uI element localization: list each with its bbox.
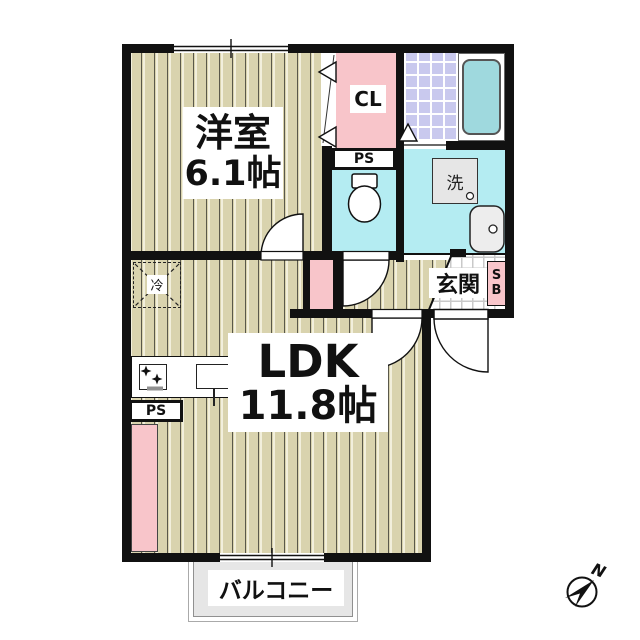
floor-plan: S B 洗 冷 PS PS [0,0,640,640]
wall-segment [446,141,514,150]
pipe-space-toilet: PS [332,148,396,170]
wall-segment [422,309,431,562]
closet-door-line [323,55,334,143]
refrigerator-label-box: 冷 [147,275,167,294]
balcony-label: バルコニー [208,570,344,606]
shoe-box-label-s: S [492,269,501,283]
refrigerator-label: 冷 [150,275,163,294]
entrance-label-text: 玄関 [436,267,480,299]
pipe-space-kitchen: PS [129,400,183,422]
wall-segment [290,309,372,318]
wall-segment [122,44,131,562]
western-room-name: 洋室 [195,113,271,155]
compass-north-text: N [589,559,609,582]
shoe-box: S B [487,261,506,306]
western-room-size: 6.1帖 [184,155,281,194]
wall-segment [122,553,220,562]
kitchen-sink [196,364,232,389]
ldk-size: 11.8帖 [239,385,378,427]
western-room-door-leaf [261,252,303,261]
bathroom-tiled-floor [404,53,458,141]
western-room-label: 洋室 6.1帖 [183,107,283,199]
pipe-space-kitchen-label: PS [146,403,166,419]
wall-segment [322,142,332,260]
compass-needle [565,580,594,607]
toilet-door-leaf [343,252,389,261]
wall-segment [324,553,430,562]
wall-segment [333,260,343,310]
shoe-box-label-b: B [492,284,502,298]
balcony-label-text: バルコニー [219,571,334,605]
wall-segment [396,44,404,262]
wall-segment [303,260,310,310]
wall-segment [486,309,514,318]
duct-block [310,260,333,310]
bathtub-surround [458,53,505,141]
pipe-space-toilet-label: PS [354,151,374,167]
compass-north-label: N [589,559,609,582]
closet-label: CL [350,85,386,113]
wall-segment [505,44,514,318]
toilet-room-floor [332,170,396,252]
stove [139,364,167,390]
washing-machine-label: 洗 [447,169,464,194]
entrance-label: 玄関 [429,268,487,298]
compass-circle [568,578,597,607]
front-door-swing [434,318,488,372]
ldk-label: LDK 11.8帖 [228,333,388,432]
closet-label-text: CL [354,87,381,111]
ldk-pipe-strip [131,424,158,552]
closet-door-strip [321,53,336,146]
wall-segment [122,251,261,260]
ldk-name: LDK [258,338,359,385]
washing-machine-pan: 洗 [432,158,478,204]
